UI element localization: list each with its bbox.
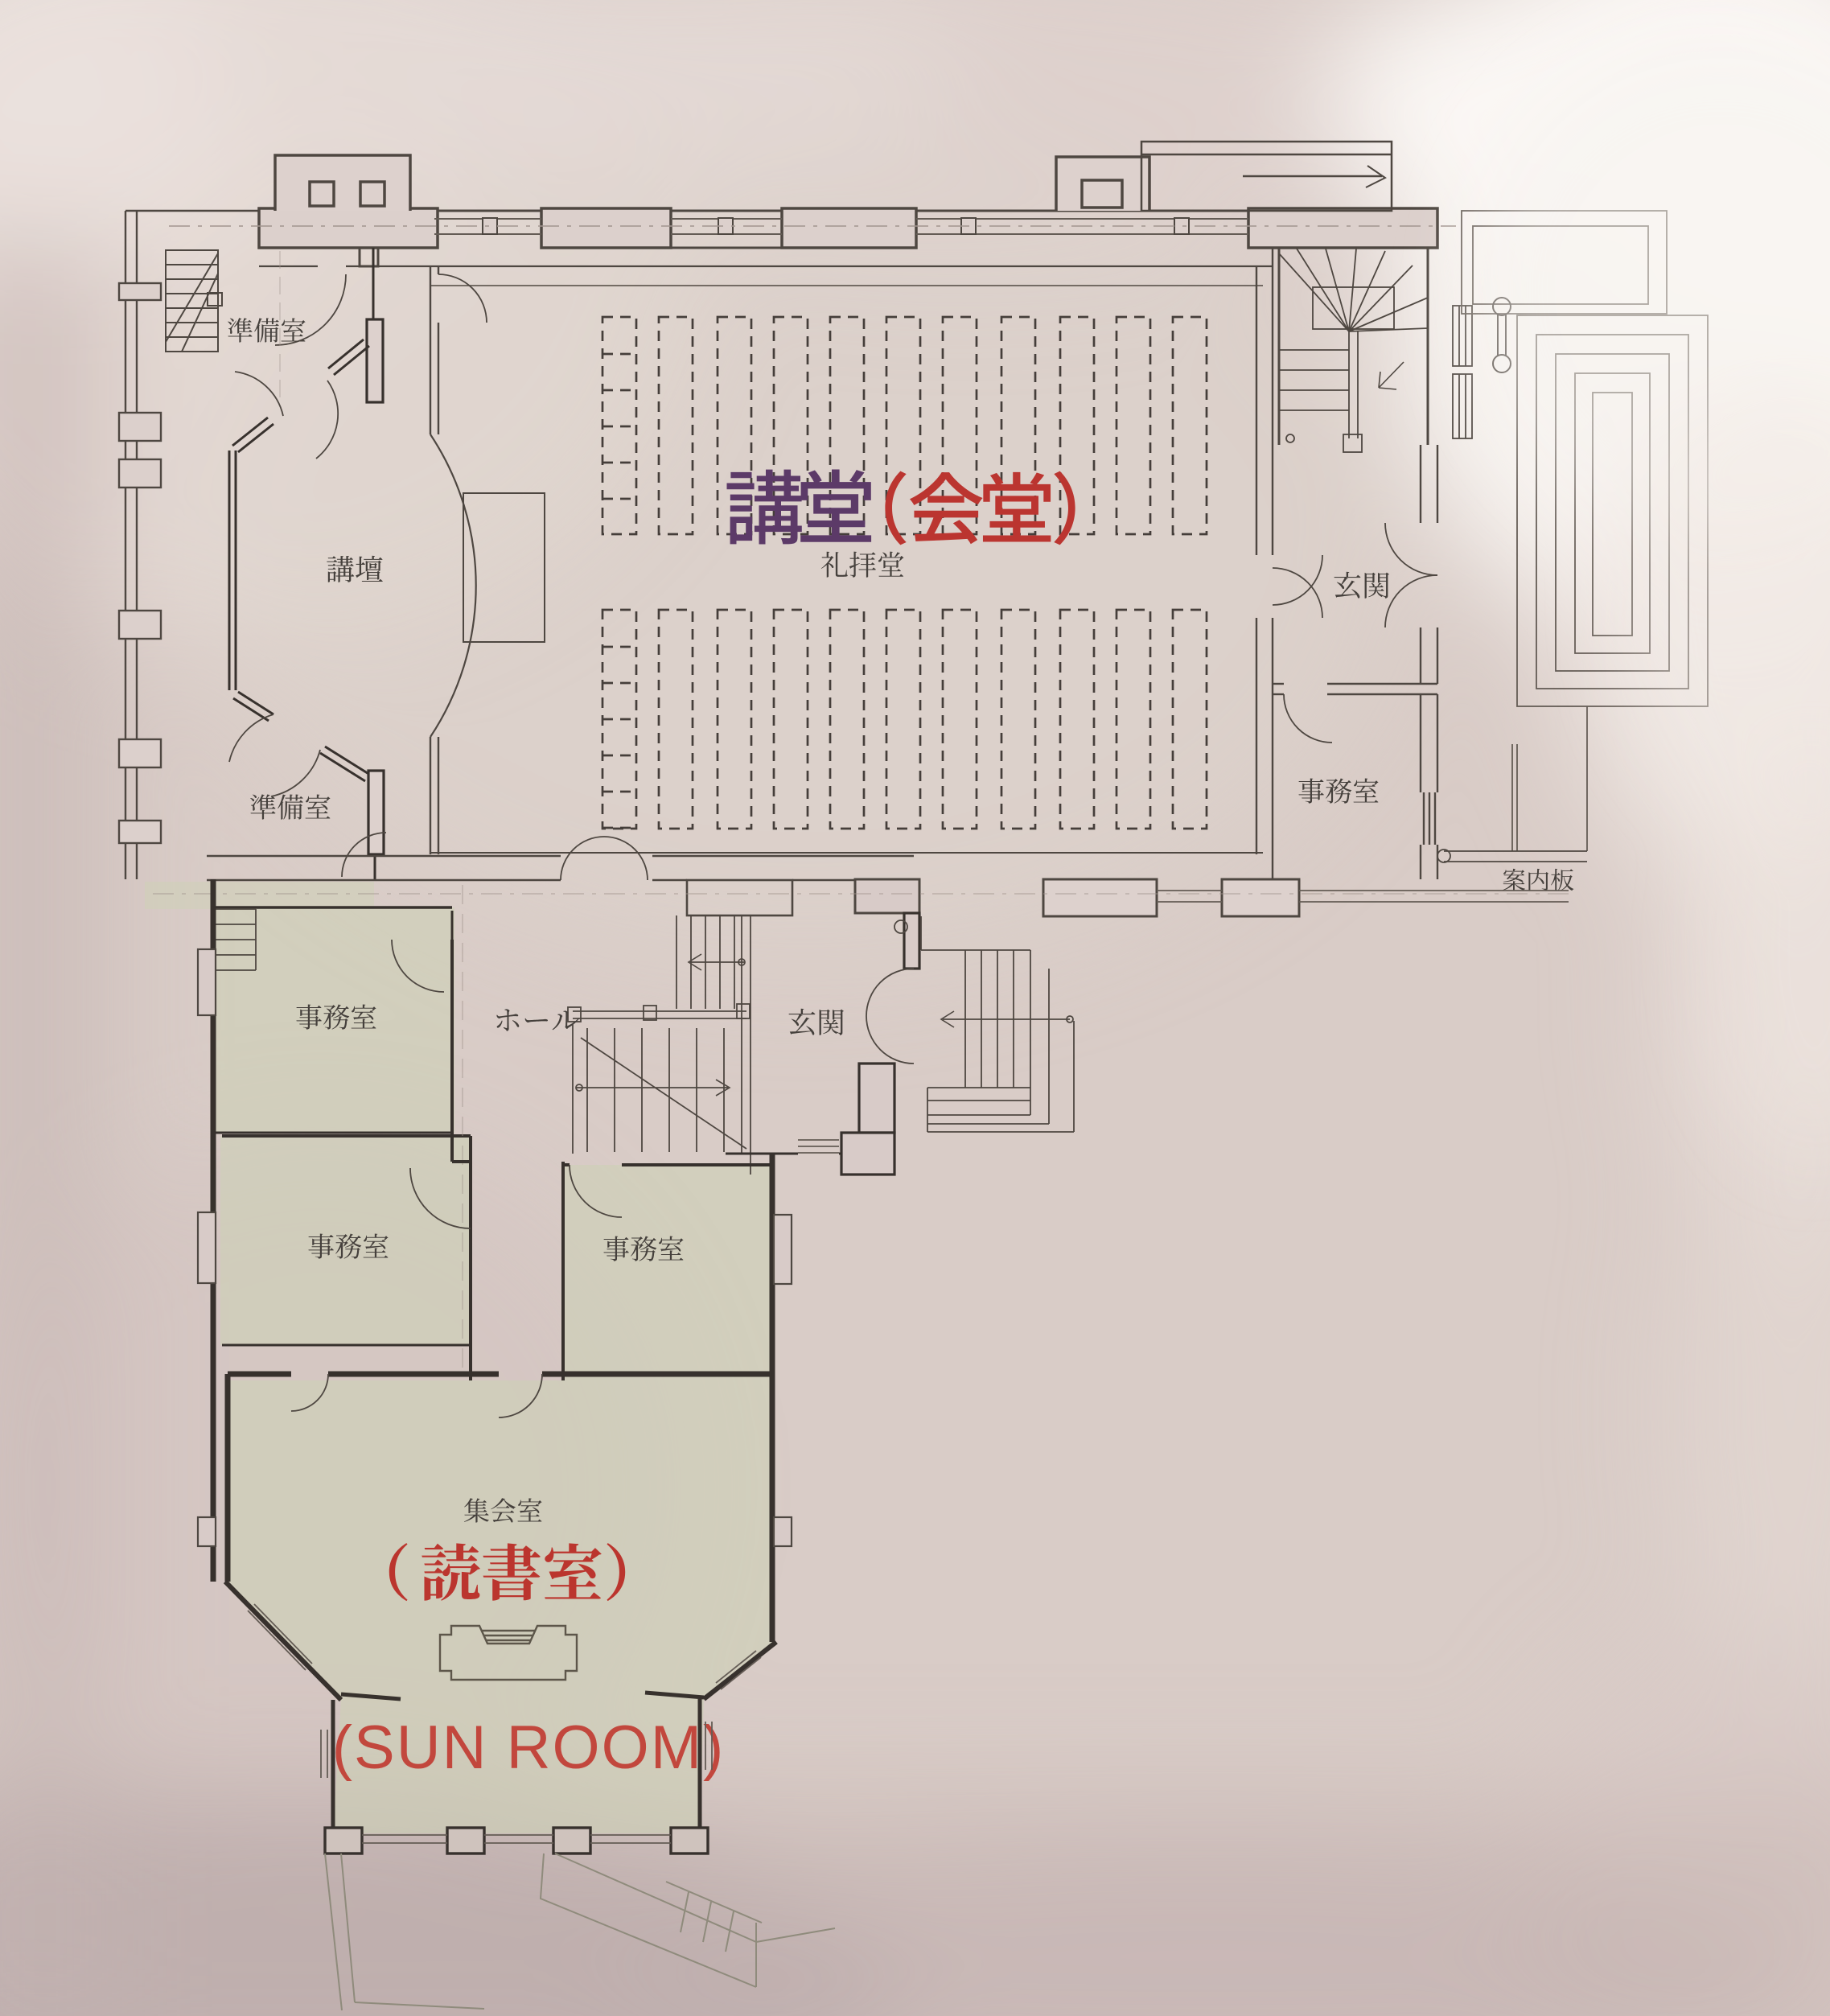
svg-text:(SUN ROOM): (SUN ROOM)	[332, 1714, 726, 1782]
